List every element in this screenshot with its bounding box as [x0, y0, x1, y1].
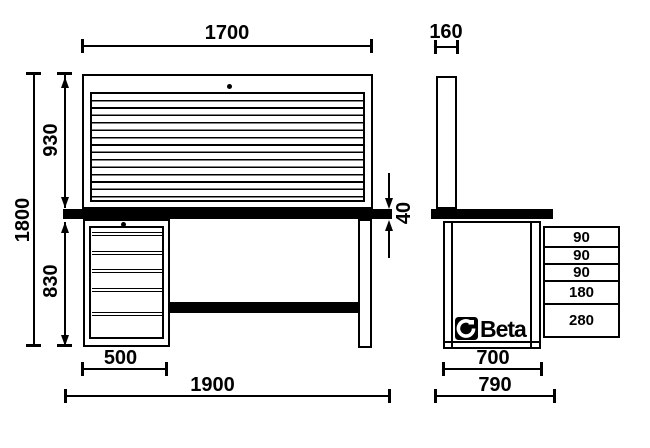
- side-body-inner-line-right: [530, 221, 532, 349]
- side-body-inner-line-left: [451, 221, 453, 349]
- dim-top-width-label: 1700: [82, 22, 372, 45]
- dim-arrow: [61, 77, 69, 88]
- drawer-divider: [92, 288, 162, 292]
- drawer-divider: [92, 269, 162, 273]
- dim-worktop-thickness-label: 40: [393, 183, 413, 243]
- louvre-tool-panel: [90, 92, 365, 202]
- dim-total-width-label: 1900: [50, 374, 375, 397]
- dim-tick: [553, 389, 556, 403]
- dim-body-depth-line: [443, 368, 543, 370]
- workbench-technical-drawing: 1700 930 830: [0, 0, 650, 448]
- dim-tick: [434, 389, 437, 403]
- dim-arrow: [61, 222, 69, 233]
- dim-top-width-line: [82, 45, 373, 47]
- drawer-lock-dot: [121, 222, 126, 227]
- side-panel: [436, 76, 457, 209]
- right-leg: [358, 219, 372, 348]
- dim-arrow: [385, 220, 393, 231]
- dim-panel-depth-label: 160: [421, 21, 471, 44]
- worktop-side: [431, 209, 553, 219]
- lower-stretcher: [170, 302, 358, 313]
- dim-arrow: [61, 197, 69, 208]
- dim-tick: [64, 389, 67, 403]
- dim-worktop-line-lower: [388, 231, 390, 258]
- beta-logo: Beta: [455, 317, 526, 340]
- dim-panel-depth-line: [435, 46, 458, 48]
- beta-helmet-icon: [455, 317, 478, 340]
- panel-hole-dot: [227, 84, 232, 89]
- dim-cabinet-width-line: [82, 368, 167, 370]
- worktop-front: [63, 209, 392, 219]
- dim-body-depth-label: 700: [443, 347, 543, 370]
- dim-worktop-line-upper: [388, 173, 390, 198]
- dim-tick: [370, 39, 373, 53]
- dim-cap: [57, 344, 72, 347]
- drawer-divider: [92, 251, 162, 255]
- dim-panel-height-line: [64, 75, 66, 208]
- dim-cap: [26, 344, 41, 347]
- drawer-height-cell: 90: [543, 226, 620, 248]
- dim-total-height-label: 1800: [12, 190, 32, 250]
- dim-tick: [434, 40, 437, 54]
- dim-cabinet-width-label: 500: [78, 347, 163, 370]
- beta-wordmark: Beta: [480, 318, 526, 340]
- drawer-height-cell: 280: [543, 303, 620, 338]
- dim-tick: [456, 40, 459, 54]
- dim-panel-height-label: 930: [40, 110, 60, 170]
- dim-total-depth-line: [435, 395, 555, 397]
- drawer-divider: [92, 232, 162, 236]
- dim-tick: [81, 39, 84, 53]
- dim-tick: [388, 389, 391, 403]
- dim-arrow: [385, 198, 393, 209]
- dim-lower-height-label: 830: [40, 251, 60, 311]
- drawer-divider: [92, 312, 162, 316]
- drawer-unit: [89, 226, 164, 339]
- dim-total-depth-label: 790: [435, 374, 555, 397]
- dim-lower-height-line: [64, 222, 66, 346]
- drawer-height-cell: 180: [543, 280, 620, 305]
- dim-total-width-line: [65, 395, 390, 397]
